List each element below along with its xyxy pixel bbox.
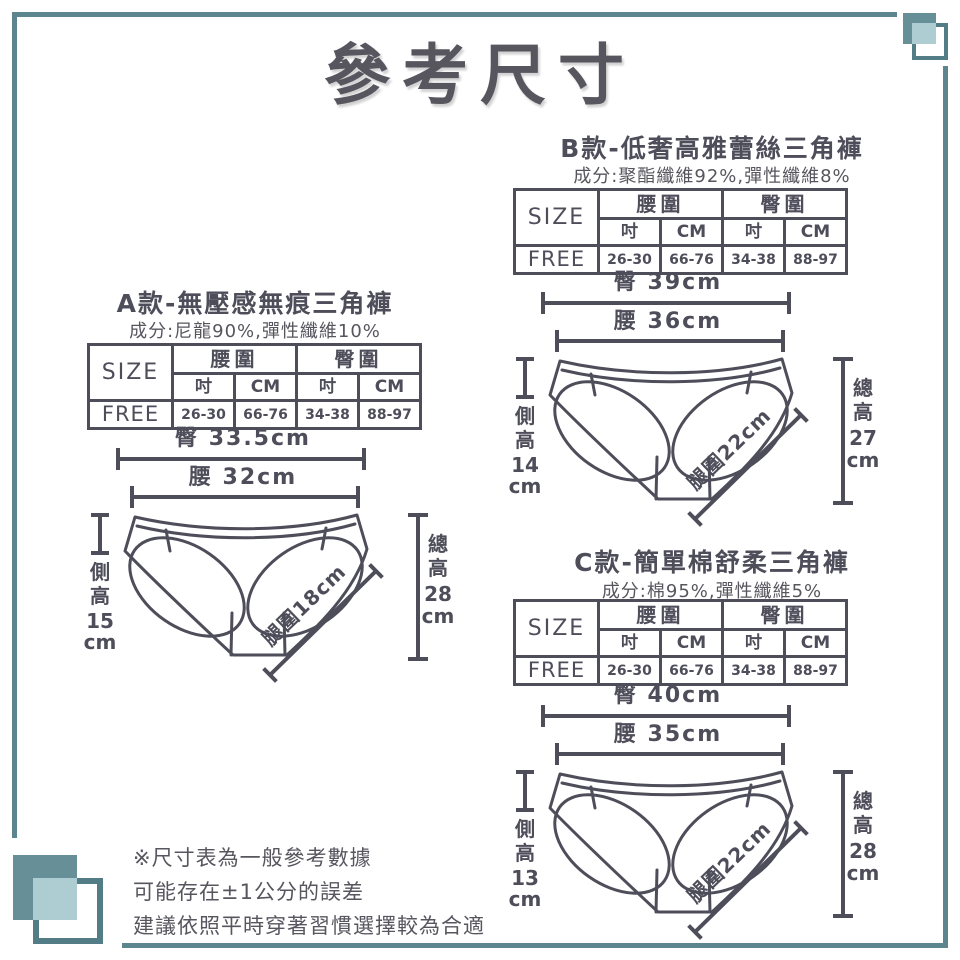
waist-header-cell: 腰圍: [173, 345, 297, 374]
total-height-char-2: 高: [853, 400, 873, 424]
side-height-unit: cm: [84, 630, 117, 654]
section-a-composition: 成分:尼龍90%,彈性纖維10%: [45, 317, 465, 343]
side-height-char-1: 側: [89, 560, 110, 584]
side-height-char-2: 高: [515, 841, 535, 865]
waist-cm-unit-cell: CM: [661, 219, 723, 246]
hip-measurement-label: 臀 40cm: [614, 683, 722, 708]
total-height-unit: cm: [847, 448, 880, 472]
hip-measurement-label: 臀 39cm: [614, 270, 722, 295]
hip-cm-value-cell: 88-97: [785, 657, 847, 685]
corner-overlap-square-bottom-left: [33, 878, 77, 920]
side-height-char-1: 側: [514, 404, 535, 428]
section-b-size-table: SIZE 腰圍 臀圍 吋 CM 吋 CM FREE 26-30 66-76 34…: [513, 188, 848, 275]
hip-inch-unit-cell: 吋: [297, 374, 359, 401]
hip-cm-value-cell: 88-97: [359, 401, 421, 429]
hip-inch-value-cell: 34-38: [297, 401, 359, 429]
section-b-composition: 成分:聚酯纖維92%,彈性纖維8%: [502, 162, 922, 188]
section-b-measurement-diagram: 臀 39cm 腰 36cm 側 高 14 cm 總 高 27 cm: [505, 271, 925, 533]
waist-header-cell: 腰圍: [599, 190, 723, 219]
free-size-cell: FREE: [515, 657, 599, 685]
total-height-value: 28: [849, 839, 877, 863]
total-height-char-2: 高: [853, 813, 873, 837]
side-height-unit: cm: [509, 474, 542, 498]
size-header-cell: SIZE: [515, 601, 599, 657]
free-size-cell: FREE: [515, 246, 599, 274]
side-height-char-1: 側: [514, 817, 535, 841]
page-title: 參考尺寸: [0, 22, 960, 118]
total-height-char-2: 高: [428, 556, 448, 580]
section-c-heading: C款-簡單棉舒柔三角褲: [502, 543, 922, 579]
waist-cm-value-cell: 66-76: [661, 657, 723, 685]
note-line-1: ※尺寸表為一般參考數據: [133, 841, 485, 875]
total-height-char-1: 總: [853, 376, 873, 400]
side-height-dimension-line: [91, 515, 109, 553]
size-header-cell: SIZE: [89, 345, 173, 401]
hip-header-cell: 臀圍: [297, 345, 421, 374]
hip-measurement-label: 臀 33.5cm: [175, 426, 311, 451]
hip-inch-value-cell: 34-38: [723, 246, 785, 274]
waist-measurement-label: 腰 35cm: [613, 722, 722, 747]
side-height-unit: cm: [509, 887, 542, 911]
section-a-heading: A款-無壓感無痕三角褲: [45, 284, 465, 320]
total-height-unit: cm: [847, 861, 880, 885]
disclaimer-note: ※尺寸表為一般參考數據 可能存在±1公分的誤差 建議依照平時穿著習慣選擇較為合適: [133, 841, 485, 943]
waist-inch-value-cell: 26-30: [599, 657, 661, 685]
note-line-3: 建議依照平時穿著習慣選擇較為合適: [133, 909, 485, 943]
frame-top-line: [12, 12, 897, 17]
side-height-char-2: 高: [515, 428, 535, 452]
total-height-char-1: 總: [853, 789, 873, 813]
total-height-char-1: 總: [428, 532, 448, 556]
free-size-cell: FREE: [89, 401, 173, 429]
section-b-heading: B款-低奢高雅蕾絲三角褲: [502, 129, 922, 165]
hip-header-cell: 臀圍: [723, 190, 847, 219]
waist-measurement-label: 腰 32cm: [188, 465, 297, 490]
total-height-unit: cm: [422, 604, 455, 628]
waist-cm-unit-cell: CM: [661, 630, 723, 657]
waist-inch-unit-cell: 吋: [173, 374, 235, 401]
note-line-2: 可能存在±1公分的誤差: [133, 875, 485, 909]
side-height-dimension-line: [516, 359, 534, 397]
section-a-measurement-diagram: 臀 33.5cm 腰 32cm 側 高 15 cm 總 高 28 cm: [80, 427, 500, 689]
section-a-size-table: SIZE 腰圍 臀圍 吋 CM 吋 CM FREE 26-30 66-76 34…: [87, 343, 422, 430]
hip-header-cell: 臀圍: [723, 601, 847, 630]
side-height-dimension-line: [516, 772, 534, 810]
waist-inch-unit-cell: 吋: [599, 630, 661, 657]
section-c-measurement-diagram: 臀 40cm 腰 35cm 側 高 13 cm 總 高 28 cm: [505, 684, 925, 946]
frame-right-line: [943, 66, 948, 948]
total-height-value: 27: [849, 426, 877, 450]
waist-cm-unit-cell: CM: [235, 374, 297, 401]
waist-measurement-label: 腰 36cm: [613, 309, 722, 334]
hip-inch-value-cell: 34-38: [723, 657, 785, 685]
hip-cm-unit-cell: CM: [359, 374, 421, 401]
side-height-char-2: 高: [90, 584, 110, 608]
total-height-value: 28: [424, 582, 452, 606]
hip-inch-unit-cell: 吋: [723, 219, 785, 246]
waist-header-cell: 腰圍: [599, 601, 723, 630]
hip-cm-unit-cell: CM: [785, 630, 847, 657]
waist-inch-unit-cell: 吋: [599, 219, 661, 246]
size-header-cell: SIZE: [515, 190, 599, 246]
hip-inch-unit-cell: 吋: [723, 630, 785, 657]
section-c-size-table: SIZE 腰圍 臀圍 吋 CM 吋 CM FREE 26-30 66-76 34…: [513, 599, 848, 686]
waist-cm-value-cell: 66-76: [235, 401, 297, 429]
frame-left-line: [12, 12, 17, 838]
hip-cm-unit-cell: CM: [785, 219, 847, 246]
size-guide-poster: 參考尺寸 A款-無壓感無痕三角褲 成分:尼龍90%,彈性纖維10% SIZE 腰…: [0, 0, 960, 960]
waist-inch-value-cell: 26-30: [173, 401, 235, 429]
hip-cm-value-cell: 88-97: [785, 246, 847, 274]
